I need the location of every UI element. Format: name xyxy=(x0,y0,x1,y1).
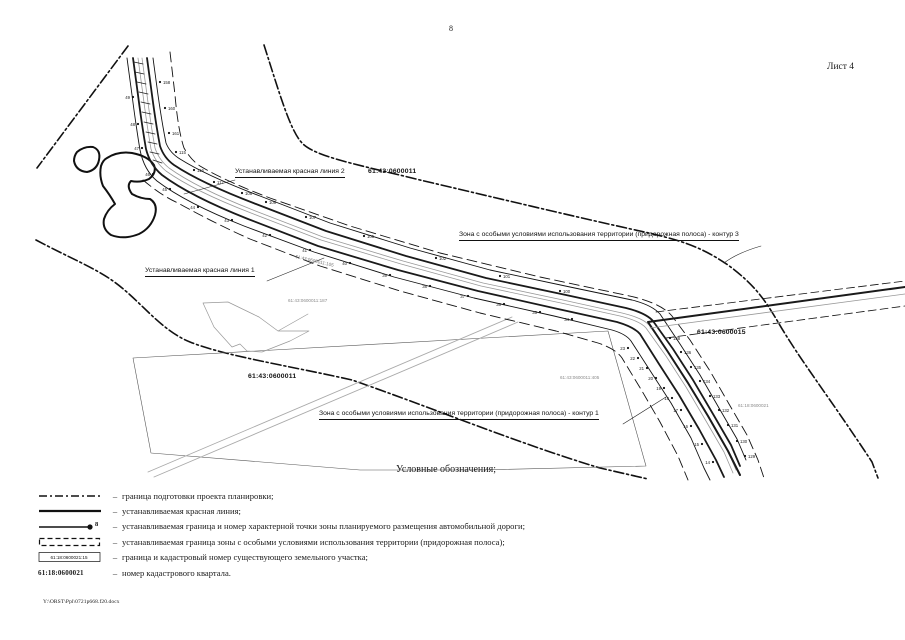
char-point-dot xyxy=(231,219,233,221)
char-point-number: 134 xyxy=(703,379,711,384)
red-line-2-label: Устанавливаемая красная линия 2 xyxy=(235,168,345,178)
roadside-zone-boundary xyxy=(656,281,905,338)
char-point-number: 105 xyxy=(367,234,375,239)
char-point-dot xyxy=(363,235,365,237)
cadastral-quarter-label: 61:43:0600015 xyxy=(697,329,746,337)
parcel-outline-gray xyxy=(203,302,309,352)
legend-item-text: устанавливаемая граница зоны с особыми у… xyxy=(122,537,505,547)
char-point-dot xyxy=(389,274,391,276)
cadastral-quarter-label: 61:43:0600011 xyxy=(248,373,296,381)
char-point-number: 133 xyxy=(713,394,721,399)
char-point-number: 47 xyxy=(134,146,139,151)
pond-outline xyxy=(74,147,99,172)
char-point-dot xyxy=(241,192,243,194)
legend-dash: – xyxy=(108,537,122,547)
project-boundary-line xyxy=(36,240,648,479)
char-point-dot xyxy=(503,303,505,305)
legend-item-text: устанавливаемая граница и номер характер… xyxy=(122,521,525,531)
boundary-point-symbol: 8 xyxy=(38,519,102,533)
char-point-dot xyxy=(627,347,629,349)
char-point-number: 158 xyxy=(163,80,171,85)
char-point-dot xyxy=(467,295,469,297)
char-point-number: 23 xyxy=(620,346,625,351)
char-point-number: 116 xyxy=(197,168,204,173)
char-point-number: 45 xyxy=(162,187,167,192)
char-point-dot xyxy=(709,395,711,397)
char-point-number: 18 xyxy=(664,396,669,401)
legend-dash: – xyxy=(108,491,122,501)
char-point-dot xyxy=(265,201,267,203)
legend-dash: – xyxy=(108,506,122,516)
legend: – граница подготовки проекта планировки;… xyxy=(38,488,525,580)
legend-row: 8 – устанавливаемая граница и номер хара… xyxy=(38,519,525,534)
parcel-number-sample: 61:18:0600021:15 xyxy=(50,555,87,560)
dashdot-line-symbol xyxy=(38,489,102,503)
char-point-dot xyxy=(671,397,673,399)
parcel-outline xyxy=(133,331,646,470)
char-point-number: 46 xyxy=(145,172,150,177)
char-point-dot xyxy=(690,366,692,368)
char-point-dot xyxy=(309,249,311,251)
char-point-number: 138 xyxy=(673,336,681,341)
char-point-dot xyxy=(164,107,166,109)
char-point-number: 48 xyxy=(130,122,135,127)
legend-dash: – xyxy=(108,521,122,531)
legend-item-text: граница подготовки проекта планировки; xyxy=(122,491,274,501)
char-point-number: 135 xyxy=(694,365,702,370)
zone-contour-1-label: Зона с особыми условиями использования т… xyxy=(319,410,599,420)
quarter-number-symbol: 61:18:0600021 xyxy=(38,566,102,580)
zone-contour-3-label: Зона с особыми условиями использования т… xyxy=(459,231,739,241)
char-point-dot xyxy=(712,461,714,463)
char-point-number: 108 xyxy=(245,191,253,196)
road-edge-gray xyxy=(142,58,736,470)
char-point-number: 49 xyxy=(125,95,130,100)
char-point-number: 37 xyxy=(460,294,465,299)
legend-dash: – xyxy=(108,552,122,562)
char-point-dot xyxy=(197,206,199,208)
leader-line xyxy=(724,246,761,263)
char-point-number: 19 xyxy=(656,386,661,391)
legend-row: – устанавливаемая граница зоны с особыми… xyxy=(38,534,525,549)
char-point-number: 131 xyxy=(731,423,739,428)
road-zone-boundary xyxy=(153,58,746,460)
char-point-dot xyxy=(727,424,729,426)
char-point-dot xyxy=(159,81,161,83)
char-point-dot xyxy=(305,216,307,218)
char-point-dot xyxy=(736,440,738,442)
legend-row: – граница подготовки проекта планировки; xyxy=(38,488,525,503)
existing-road-line xyxy=(148,317,518,477)
legend-item-text: номер кадастрового квартала. xyxy=(122,568,231,578)
char-point-dot xyxy=(646,367,648,369)
char-point-dot xyxy=(637,357,639,359)
char-point-number: 136 xyxy=(684,350,692,355)
char-point-number: 38 xyxy=(422,284,427,289)
legend-row: 61:18:0600021 – номер кадастрового кварт… xyxy=(38,565,525,580)
char-point-number: 44 xyxy=(190,205,195,210)
char-point-dot xyxy=(680,409,682,411)
char-point-number: 160 xyxy=(168,106,176,111)
char-point-dot xyxy=(680,351,682,353)
zone-boundary-symbol xyxy=(38,535,102,549)
parcel-number-label: 61:18:0600021 xyxy=(738,403,769,408)
cadastral-quarter-label: 61:43:0600011 xyxy=(368,168,416,176)
legend-row: – устанавливаемая красная линия; xyxy=(38,503,525,518)
char-point-number: 107 xyxy=(309,215,317,220)
char-point-dot xyxy=(744,455,746,457)
char-point-number: 109 xyxy=(269,200,277,205)
char-point-dot xyxy=(349,262,351,264)
char-point-number: 132 xyxy=(722,408,730,413)
char-point-dot xyxy=(141,147,143,149)
char-point-dot xyxy=(539,311,541,313)
char-point-dot xyxy=(429,285,431,287)
east-boundary-bold xyxy=(648,287,905,475)
char-point-dot xyxy=(499,275,501,277)
legend-item-text: устанавливаемая красная линия; xyxy=(122,506,241,516)
char-point-dot xyxy=(701,443,703,445)
char-point-dot xyxy=(152,173,154,175)
char-point-dot xyxy=(435,257,437,259)
char-point-dot xyxy=(663,387,665,389)
char-point-number: 34 xyxy=(564,317,569,322)
char-point-number: 21 xyxy=(639,366,644,371)
legend-row: 61:18:0600021:15 – граница и кадастровый… xyxy=(38,550,525,565)
char-point-dot xyxy=(699,380,701,382)
char-point-number: 130 xyxy=(740,439,748,444)
parcel-number-label: 61:43:0600011:405 xyxy=(560,375,599,380)
char-point-number: 16 xyxy=(683,424,688,429)
char-point-dot xyxy=(175,151,177,153)
char-point-number: 161 xyxy=(172,131,180,136)
file-path-footer: Y:\ORST\Ppl\0721p668.f20.docx xyxy=(43,599,120,605)
char-point-number: 35 xyxy=(532,310,537,315)
legend-dash: – xyxy=(108,568,122,578)
char-point-number: 117 xyxy=(217,180,224,185)
parcel-number-label: 61:43:0600011:187 xyxy=(288,298,327,303)
parcel-box-symbol: 61:18:0600021:15 xyxy=(38,550,102,564)
leader-line xyxy=(623,397,666,424)
red-line xyxy=(147,58,740,466)
red-line-symbol xyxy=(38,504,102,518)
red-line-1-label: Устанавливаемая красная линия 1 xyxy=(145,267,255,277)
char-point-dot xyxy=(690,425,692,427)
drawing-sheet: { "colors": {"ink": "#1a1a1a", "muted": … xyxy=(0,0,905,640)
char-point-dot xyxy=(269,234,271,236)
char-point-number: 17 xyxy=(673,408,678,413)
char-point-dot xyxy=(193,169,195,171)
char-point-number: 102 xyxy=(439,256,447,261)
char-point-number: 15 xyxy=(694,442,699,447)
char-point-number: 101 xyxy=(503,274,511,279)
char-point-number: 42 xyxy=(262,233,267,238)
char-point-number: 39 xyxy=(382,273,387,278)
char-point-dot xyxy=(559,290,561,292)
char-point-number: 36 xyxy=(496,302,501,307)
char-point-number: 129 xyxy=(748,454,756,459)
point-number-sample: 8 xyxy=(95,521,99,528)
char-point-number: 100 xyxy=(563,289,571,294)
char-point-number: 41 xyxy=(302,248,307,253)
legend-item-text: граница и кадастровый номер существующег… xyxy=(122,552,368,562)
char-point-number: 22 xyxy=(630,356,635,361)
char-point-number: 14 xyxy=(705,460,710,465)
char-point-dot xyxy=(655,377,657,379)
char-point-dot xyxy=(213,181,215,183)
legend-title: Условные обозначения; xyxy=(396,464,496,475)
char-point-number: 43 xyxy=(224,218,229,223)
roadside-zone-boundary xyxy=(143,180,688,480)
char-point-dot xyxy=(571,318,573,320)
char-point-number: 115 xyxy=(179,150,186,155)
char-point-dot xyxy=(132,96,134,98)
quarter-number-sample: 61:18:0600021 xyxy=(38,569,84,577)
char-point-dot xyxy=(168,132,170,134)
char-point-dot xyxy=(169,188,171,190)
char-point-dot xyxy=(669,337,671,339)
char-point-number: 40 xyxy=(342,261,347,266)
char-point-dot xyxy=(718,409,720,411)
char-point-dot xyxy=(137,123,139,125)
pond-outline xyxy=(100,153,155,238)
char-point-number: 20 xyxy=(648,376,653,381)
